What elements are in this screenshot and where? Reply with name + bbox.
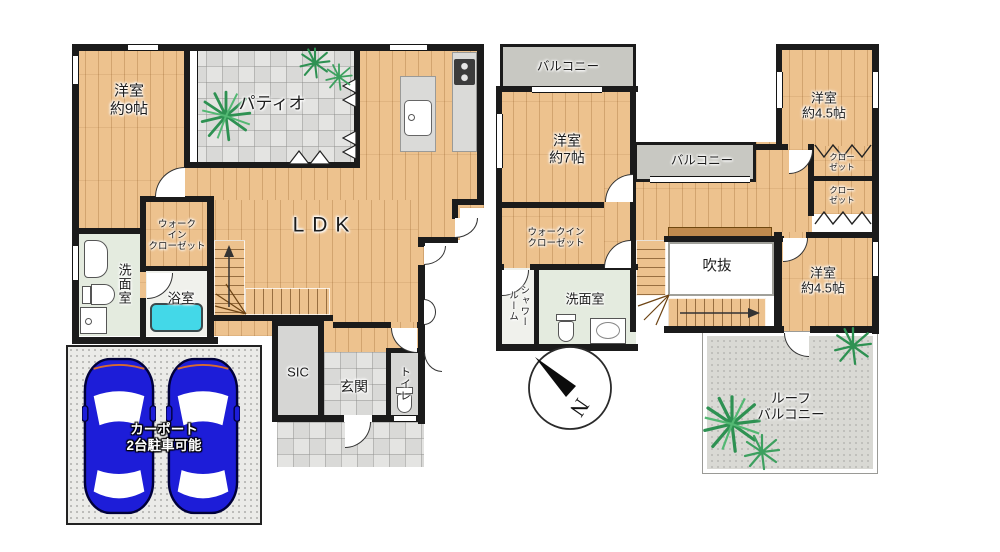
room-label-atrium: 吹抜 [703,258,732,275]
room-label-bedroom9: 洋室 約9帖 [110,82,148,117]
floor-plan: N 洋室 約9帖 パティオ LDK ウォーク イン クローゼット 洗面室 浴室 … [0,0,1000,552]
wall-segment [140,266,214,271]
faucet-icon [408,114,415,121]
wall-segment [184,44,190,168]
stairs-1f-flight [245,288,330,315]
wall-segment [72,228,146,234]
room-label-toilet-1f: トイレ [398,366,411,402]
window [872,242,879,276]
wall-segment [418,265,425,424]
sink-icon [84,240,108,278]
door-arc [455,218,478,238]
window [72,246,79,280]
room-label-balcony-mid: バルコニー [671,154,733,169]
window [532,86,602,93]
wall-segment [272,415,344,422]
door-arc [424,246,446,265]
wall-segment [272,320,278,422]
wall-segment [140,196,146,272]
bathtub-icon [150,303,203,332]
toilet-icon [82,286,91,304]
wall-segment [776,44,879,50]
wall-segment [386,348,391,415]
plant-icon [742,432,782,472]
room-label-closet-upper: クロー ゼット [829,152,855,172]
room-label-shower: シャワー ルーム [507,285,529,327]
wall-segment [452,199,458,219]
window [394,415,416,422]
wall-segment [664,326,784,333]
room-label-wic-1f: ウォーク イン クローゼット [148,219,205,253]
room-label-sic: SIC [287,364,309,379]
room-label-bedroom45-se: 洋室 約4.5帖 [801,266,845,297]
plant-icon [324,62,354,92]
stove-icon [454,59,475,85]
sink-basin-icon [596,322,620,339]
room-label-bathroom: 浴室 [168,291,195,307]
wall-segment [318,326,324,422]
window [776,72,783,108]
toilet-icon [91,284,115,305]
wall-segment [72,44,79,344]
stairs-direction-arrow [676,304,762,322]
wall-segment [534,268,539,348]
carport-label: カーポート 2台駐車可能 [126,422,201,454]
wall-segment [812,176,872,181]
room-label-bedroom7: 洋室 約7帖 [549,132,585,165]
toilet-icon [558,321,574,342]
window [189,50,198,162]
wall-segment [333,322,391,328]
room-label-ldk: LDK [293,214,358,239]
room-label-washroom-2f: 洗面室 [565,291,604,306]
window [650,176,750,183]
room-label-roof-balcony: ルーフ バルコニー [757,391,824,423]
toilet-icon [556,314,576,321]
window [496,114,503,168]
folding-door-icon [814,210,872,226]
window [390,44,427,51]
compass-icon: N [524,342,616,434]
window [72,56,79,84]
room-label-patio: パティオ [239,94,306,114]
room-label-washroom-1f: 洗面室 [116,263,131,305]
stairs-fan [636,292,670,328]
wall-segment [776,144,788,150]
window [128,44,158,51]
stairs-2f-flight [636,240,666,296]
room-label-closet-lower: クロー ゼット [829,185,855,205]
wall-segment [184,162,360,168]
room-label-balcony-top: バルコニー [537,60,599,75]
washer-drain-icon [85,318,92,325]
stairs-up-arrow [220,243,238,313]
wall-segment [806,232,878,238]
wall-segment [477,44,484,205]
room-label-bedroom45-ne: 洋室 約4.5帖 [802,91,846,122]
folding-window-icon [342,130,357,160]
room-label-entrance: 玄関 [340,379,368,396]
wall-segment [72,337,218,344]
wall-segment [664,236,784,242]
room-label-wic-2f: ウォークイン クローゼット [527,227,584,249]
wall-segment [774,232,782,332]
folding-window-icon [288,150,332,165]
window [872,72,879,108]
wall-segment [630,208,636,332]
plant-icon [832,325,874,367]
wall-segment [496,202,604,208]
window-half-round [424,299,436,325]
wall-segment [272,320,324,326]
door-arc [424,352,442,372]
